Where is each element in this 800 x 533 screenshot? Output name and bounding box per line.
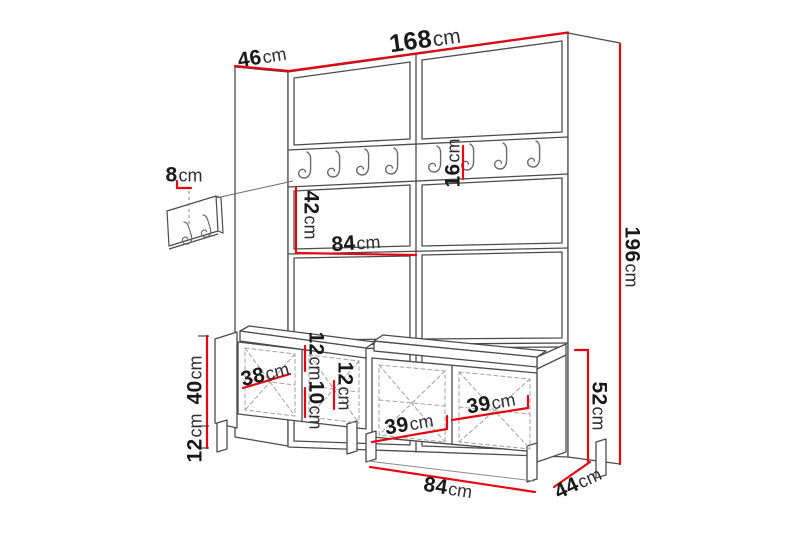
dim-16cm: 16cm	[443, 139, 464, 188]
dim-8cm: 8cm	[166, 165, 203, 186]
dim-12cm-shelf-top: 12cm	[306, 332, 327, 381]
dim-10cm-shelf: 10cm	[306, 381, 327, 430]
dim-52cm: 52cm	[589, 382, 610, 431]
bench-leg	[366, 431, 376, 462]
dim-196cm: 196cm	[622, 227, 643, 288]
dim-12cm-shelf-right: 12cm	[335, 362, 356, 411]
furniture-line-drawing	[0, 0, 800, 533]
dim-42cm: 42cm	[301, 191, 322, 240]
dimension-diagram: 46cm 168cm 8cm 42cm 84cm 16cm 196cm 40cm…	[0, 0, 800, 533]
bench-leg	[347, 421, 357, 454]
dim-12cm-legs: 12cm	[185, 414, 206, 463]
dim-84cm-panel: 84cm	[331, 231, 381, 255]
bench-leg	[217, 420, 227, 452]
dim-40cm: 40cm	[185, 356, 206, 405]
